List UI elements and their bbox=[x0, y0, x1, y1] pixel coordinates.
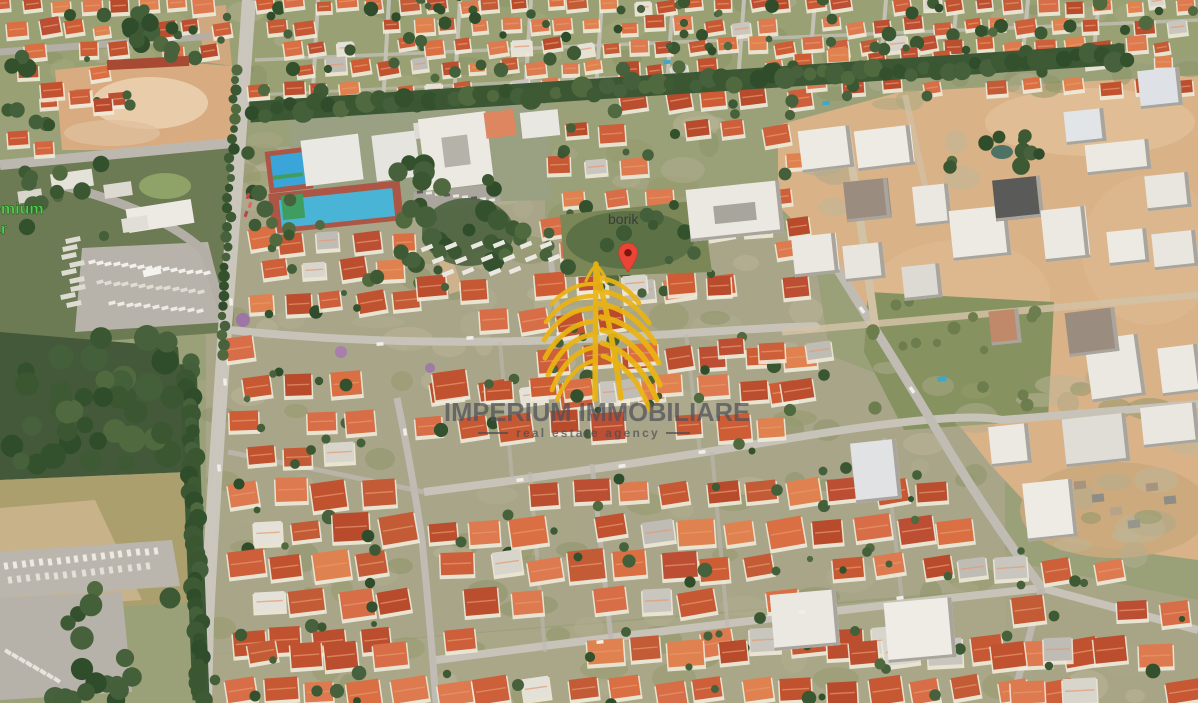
svg-text:ar: ar bbox=[0, 221, 7, 238]
svg-text:emium: emium bbox=[0, 201, 44, 218]
svg-text:IMPERIUM IMMOBILIARE: IMPERIUM IMMOBILIARE bbox=[444, 397, 750, 427]
svg-text:borik: borik bbox=[608, 211, 639, 227]
svg-text:real estate agency: real estate agency bbox=[516, 426, 660, 440]
